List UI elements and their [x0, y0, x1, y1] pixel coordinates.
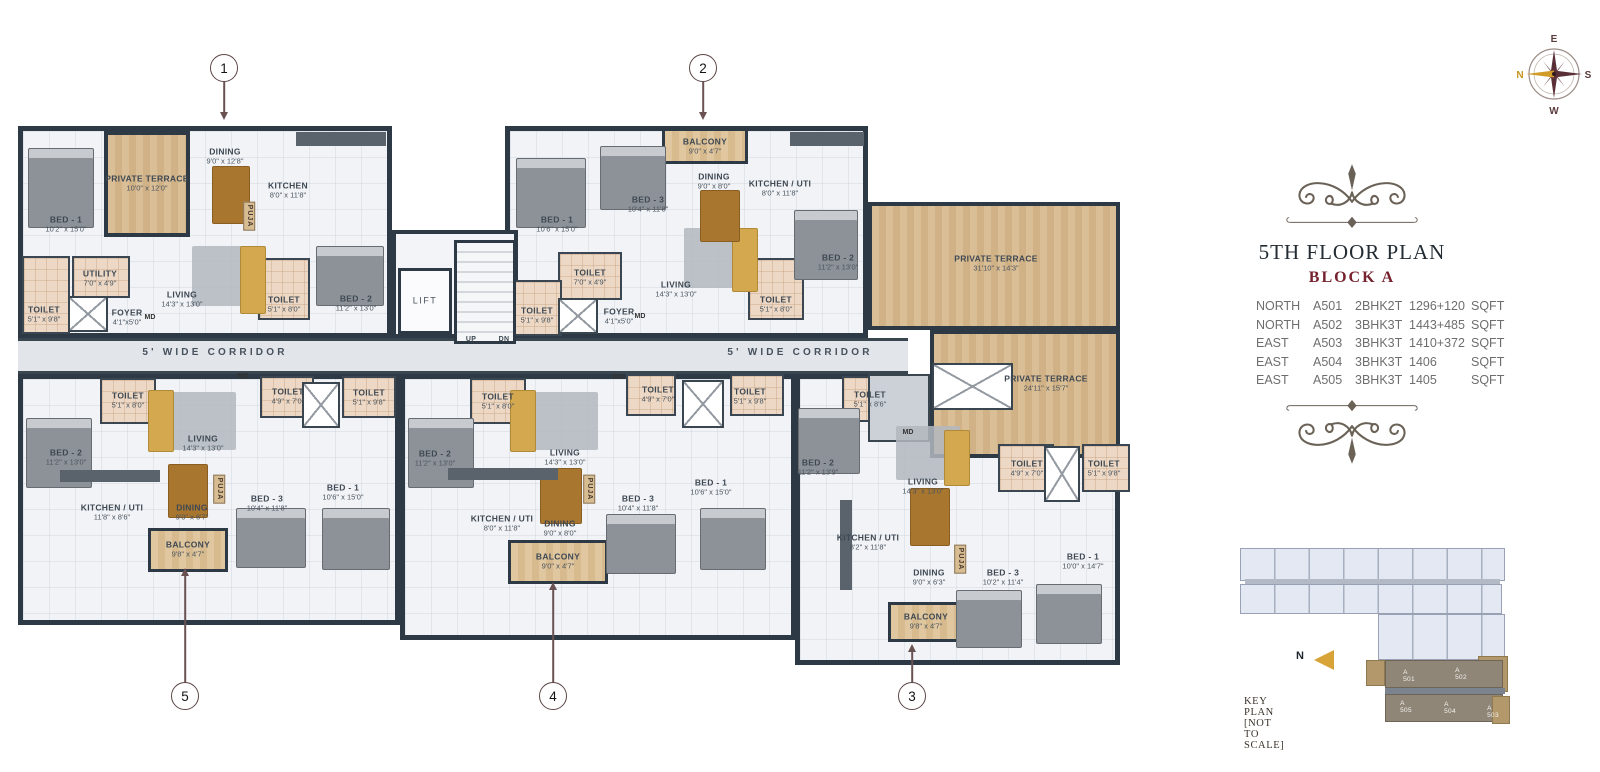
- furniture-table: [910, 488, 950, 546]
- callout-circle: 4: [539, 682, 567, 710]
- floor-plan-page: BED - 110'2" x 15'0"PRIVATE TERRACE10'0"…: [0, 0, 1600, 772]
- unit-table-cell-sqft: SQFT: [1471, 319, 1507, 332]
- callout-line: [184, 576, 186, 683]
- unit-table-cell-dir: NORTH: [1256, 319, 1313, 332]
- furniture-sofa: [148, 390, 174, 452]
- callout-arrow-icon: [549, 582, 557, 590]
- furniture-rug: [170, 392, 236, 450]
- key-plan-wing-bottom: [1240, 584, 1502, 614]
- callout-line: [911, 652, 913, 683]
- north-arrow-icon: [1314, 650, 1334, 670]
- callout-circle: 2: [689, 54, 717, 82]
- furniture-counter: [790, 132, 864, 146]
- zone-toilet: [510, 280, 562, 336]
- unit-table-cell-type: 2BHK2T: [1355, 300, 1409, 313]
- unit-table-cell-dir: EAST: [1256, 337, 1313, 350]
- zone-balcony: [662, 128, 748, 164]
- unit-table-cell-type: 3BHK3T: [1355, 319, 1409, 332]
- compass-w: W: [1549, 106, 1559, 116]
- furniture-bed: [794, 210, 858, 280]
- callout-arrow-icon: [181, 568, 189, 576]
- key-plan-unit-label: A 504: [1444, 701, 1456, 715]
- unit-table-cell-area: 1443+485: [1409, 319, 1471, 332]
- unit-table-cell-unit: A505: [1313, 374, 1355, 387]
- compass-n: N: [1516, 70, 1523, 81]
- furniture-bed: [798, 408, 860, 474]
- unit-table-cell-type: 3BHK3T: [1355, 374, 1409, 387]
- callout-circle: 3: [898, 682, 926, 710]
- key-plan-wing-right: [1378, 614, 1505, 660]
- zone-duct: [1044, 446, 1080, 502]
- unit-table-cell-area: 1410+372: [1409, 337, 1471, 350]
- furniture-sofa: [240, 246, 266, 314]
- compass-rose: E S W N: [1514, 30, 1594, 116]
- furniture-bed: [700, 508, 766, 570]
- zone-balcony: [888, 602, 964, 642]
- unit-table-cell-area: 1405: [1409, 374, 1471, 387]
- callout-line: [552, 590, 554, 683]
- page-title: 5TH FLOOR PLAN: [1212, 240, 1492, 265]
- plan-title-block: 5TH FLOOR PLAN BLOCK A: [1212, 240, 1492, 287]
- zone-toilet: [342, 376, 396, 418]
- zone-toilet: [1082, 444, 1130, 492]
- unit-table-cell-sqft: SQFT: [1471, 374, 1507, 387]
- furniture-bed: [956, 590, 1022, 648]
- zone-duct: [932, 363, 1013, 410]
- callout-line: [223, 82, 225, 112]
- furniture-counter: [60, 470, 160, 482]
- zone-toilet: [558, 252, 622, 300]
- key-plan-unit-label: A 505: [1400, 700, 1412, 714]
- furniture-sofa: [510, 390, 536, 452]
- unit-table-cell-sqft: SQFT: [1471, 356, 1507, 369]
- furniture-table: [700, 190, 740, 242]
- ornament-bottom: [1277, 390, 1427, 470]
- compass-s: S: [1585, 70, 1592, 81]
- furniture-bed: [600, 146, 666, 210]
- unit-table-cell-sqft: SQFT: [1471, 337, 1507, 350]
- furniture-table: [212, 166, 250, 224]
- furniture-bed: [28, 148, 94, 228]
- unit-table-cell-sqft: SQFT: [1471, 300, 1507, 313]
- zone-toilet: [22, 256, 70, 334]
- unit-table-cell-dir: EAST: [1256, 356, 1313, 369]
- unit-table-cell-type: 3BHK3T: [1355, 356, 1409, 369]
- callout-arrow-icon: [699, 112, 707, 120]
- furniture-table: [168, 464, 208, 518]
- callout-circle: 1: [210, 54, 238, 82]
- unit-table-cell-dir: NORTH: [1256, 300, 1313, 313]
- ornament-top: [1277, 158, 1427, 238]
- unit-area-table: NORTHA5012BHK2T1296+120SQFTNORTHA5023BHK…: [1256, 300, 1507, 387]
- unit-table-cell-dir: EAST: [1256, 374, 1313, 387]
- key-plan-north-label: N: [1296, 650, 1304, 662]
- furniture-counter: [840, 500, 852, 590]
- zone-duct: [302, 382, 340, 428]
- furniture-bed: [606, 514, 676, 574]
- furniture-sofa: [944, 430, 970, 486]
- furniture-bed: [316, 246, 384, 306]
- key-plan-unit-label: A 502: [1455, 667, 1467, 681]
- zone-lift: [398, 268, 452, 334]
- unit-table-cell-unit: A502: [1313, 319, 1355, 332]
- zone-duct: [682, 380, 724, 428]
- unit-table-cell-type: 3BHK3T: [1355, 337, 1409, 350]
- zone-toilet: [626, 374, 676, 416]
- unit-table-cell-unit: A503: [1313, 337, 1355, 350]
- furniture-bed: [322, 508, 390, 570]
- furniture-bed: [516, 158, 586, 228]
- unit-table-cell-unit: A501: [1313, 300, 1355, 313]
- zone-balcony: [508, 540, 608, 584]
- zone-stairs: [454, 240, 516, 344]
- callout-arrow-icon: [220, 112, 228, 120]
- zone-terrace: [104, 131, 190, 237]
- callout-line: [702, 82, 704, 112]
- furniture-bed: [236, 508, 306, 568]
- furniture-rug: [532, 392, 598, 450]
- key-plan-caption: KEY PLAN [NOT TO SCALE]: [1244, 696, 1284, 751]
- key-plan-unit-label: A 501: [1403, 669, 1415, 683]
- key-plan-highlight-terrace-2: [1366, 660, 1385, 686]
- zone-duct: [68, 296, 108, 332]
- callout-arrow-icon: [908, 644, 916, 652]
- key-plan-unit-label: A 503: [1487, 705, 1499, 719]
- callout-circle: 5: [171, 682, 199, 710]
- unit-table-cell-area: 1406: [1409, 356, 1471, 369]
- zone-balcony: [148, 528, 228, 572]
- zone-toilet: [730, 374, 784, 416]
- furniture-counter: [448, 468, 558, 480]
- unit-table-cell-area: 1296+120: [1409, 300, 1471, 313]
- unit-table-cell-unit: A504: [1313, 356, 1355, 369]
- furniture-bed: [1036, 584, 1102, 644]
- zone-duct: [558, 298, 598, 334]
- furniture-counter: [296, 132, 386, 146]
- block-subtitle: BLOCK A: [1212, 269, 1492, 287]
- key-plan-wing-top: [1240, 548, 1505, 581]
- zone-terrace: [868, 202, 1120, 330]
- compass-e: E: [1551, 34, 1558, 45]
- zone-toilet: [72, 256, 130, 298]
